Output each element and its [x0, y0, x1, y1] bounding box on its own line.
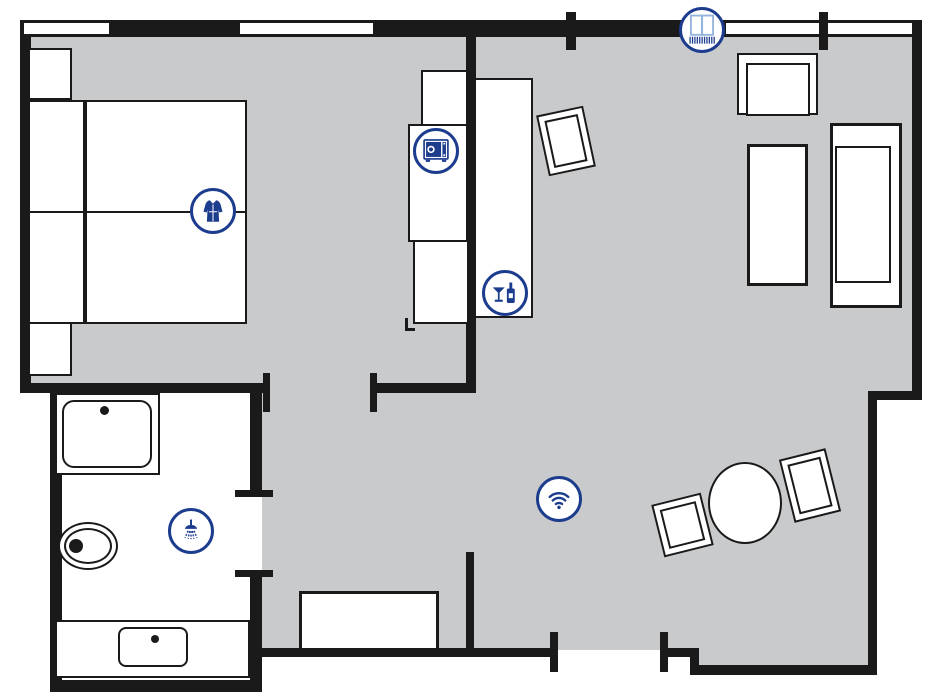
wifi-icon — [536, 476, 582, 522]
entry-partition-wall — [466, 552, 474, 653]
wall-bottom-right — [692, 665, 877, 675]
sofa-seat — [835, 146, 891, 283]
chair-right-seat — [787, 457, 832, 515]
wall-tick-right — [819, 12, 828, 50]
shower-icon — [168, 508, 214, 554]
wardrobe-top — [421, 70, 468, 126]
bedroom-bottom-wall-right — [377, 383, 470, 393]
minibar-icon — [482, 270, 528, 316]
nightstand-bottom — [28, 322, 72, 376]
safe-glyph — [421, 136, 451, 166]
wall-bottom-mid — [664, 648, 699, 657]
door-hinge-mark-h — [405, 328, 415, 331]
entrance-door-jamb-left — [550, 632, 558, 672]
dining-table — [708, 462, 782, 544]
bathroom-door-jamb-bottom — [235, 570, 273, 577]
armchair-seat — [746, 63, 810, 116]
chair-left-seat — [660, 501, 706, 549]
window-top-middle — [240, 23, 373, 34]
balcony-door-glyph — [685, 13, 719, 47]
sofa — [830, 123, 902, 308]
armchair — [737, 53, 818, 115]
living-room-floor-corner — [692, 648, 868, 665]
wifi-glyph — [544, 484, 574, 514]
entrance-door-jamb-right — [660, 632, 668, 672]
hallway-bench — [299, 591, 439, 651]
bathrobe-icon — [190, 188, 236, 234]
bathrobe-glyph — [198, 196, 228, 226]
floor-plan — [0, 0, 933, 700]
wall-right-lower — [868, 391, 877, 675]
lounger — [747, 144, 808, 286]
bathtub-basin — [118, 627, 188, 667]
bed-headboard-upper — [28, 100, 85, 213]
bathroom-right-wall-upper — [250, 385, 262, 497]
bedroom-door-jamb-right — [370, 373, 377, 412]
minibar-glyph — [490, 278, 520, 308]
safe-icon — [413, 128, 459, 174]
bed-headboard-lower — [28, 211, 85, 324]
bedroom-door-jamb-left — [263, 373, 270, 412]
bathtub-drain — [151, 635, 159, 643]
bathroom-bottom-wall — [50, 680, 262, 692]
toilet-drain — [69, 539, 83, 553]
tv-screen — [544, 114, 587, 168]
bathroom-right-wall-lower — [250, 570, 262, 692]
wall-right — [912, 20, 922, 400]
bathroom-door-jamb-top — [235, 490, 273, 497]
wall-tick-left — [566, 12, 576, 50]
washbasin-drain — [100, 406, 109, 415]
shower-glyph — [176, 516, 206, 546]
nightstand-top — [28, 48, 72, 100]
balcony-door-icon — [679, 7, 725, 53]
window-top-left — [24, 23, 109, 34]
wardrobe-bottom — [413, 240, 469, 324]
